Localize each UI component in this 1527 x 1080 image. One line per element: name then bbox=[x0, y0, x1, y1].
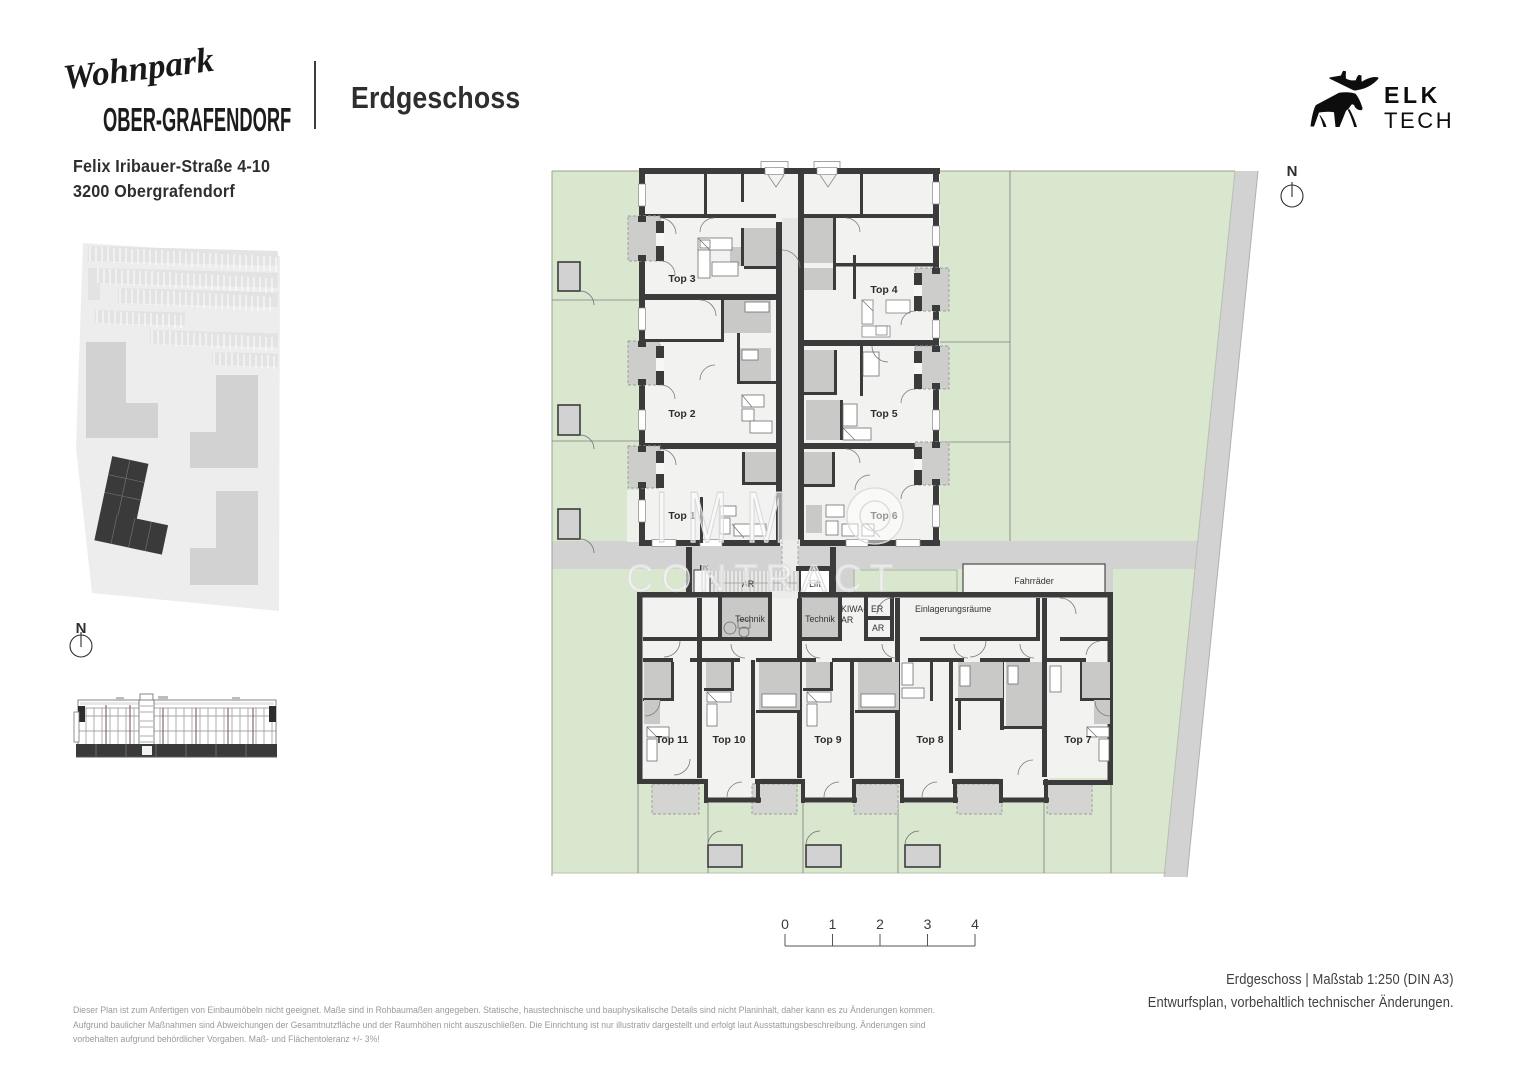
svg-text:IMM: IMM bbox=[655, 477, 805, 557]
svg-text:Top 9: Top 9 bbox=[814, 734, 841, 746]
svg-text:2: 2 bbox=[876, 916, 884, 932]
svg-text:Top 5: Top 5 bbox=[870, 408, 897, 420]
svg-text:3: 3 bbox=[924, 916, 932, 932]
svg-text:AR: AR bbox=[841, 615, 853, 625]
svg-text:N: N bbox=[1287, 163, 1298, 180]
svg-text:N: N bbox=[76, 620, 87, 637]
svg-text:CONTRACT: CONTRACT bbox=[626, 558, 901, 600]
svg-text:Top 2: Top 2 bbox=[668, 408, 695, 420]
svg-text:4: 4 bbox=[971, 916, 979, 932]
svg-text:Einlagerungsräume: Einlagerungsräume bbox=[915, 604, 991, 614]
svg-text:Top 7: Top 7 bbox=[1064, 734, 1091, 746]
svg-text:ELK: ELK bbox=[1384, 82, 1441, 108]
svg-text:0: 0 bbox=[781, 916, 789, 932]
svg-text:Top 3: Top 3 bbox=[668, 273, 695, 285]
svg-text:Technik: Technik bbox=[735, 614, 765, 624]
svg-text:AR: AR bbox=[872, 623, 884, 633]
svg-text:TECH: TECH bbox=[1384, 108, 1454, 133]
svg-text:KIWA-: KIWA- bbox=[841, 604, 866, 614]
svg-text:Fahrräder: Fahrräder bbox=[1014, 576, 1054, 586]
svg-text:Top 11: Top 11 bbox=[656, 734, 689, 746]
svg-text:Top 4: Top 4 bbox=[870, 284, 897, 296]
svg-text:Top 8: Top 8 bbox=[916, 734, 943, 746]
svg-text:Top 10: Top 10 bbox=[712, 734, 745, 746]
svg-text:ER: ER bbox=[871, 604, 883, 614]
svg-text:Technik: Technik bbox=[805, 614, 835, 624]
svg-text:1: 1 bbox=[829, 916, 837, 932]
